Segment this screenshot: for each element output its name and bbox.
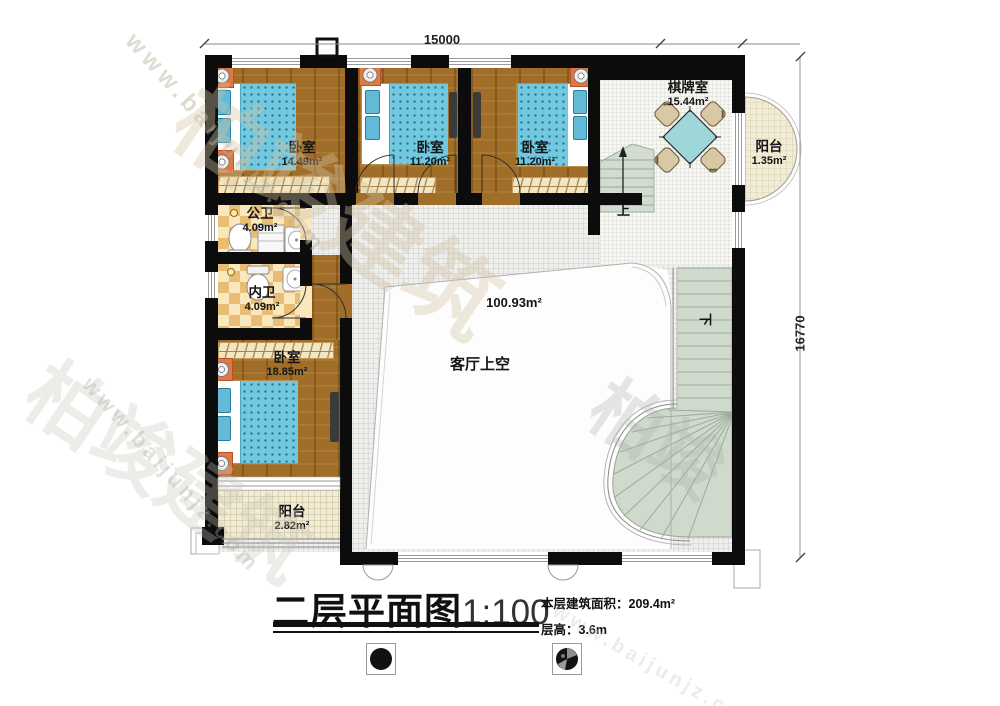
plan-notes: 本层建筑面积：209.4m² 层高：3.6m: [541, 593, 675, 638]
title-underline-thick: [273, 622, 539, 627]
floorplan-canvas: 卧室14.49m² 卧室11.20m² 卧室11.20m² 棋牌室15.44m²…: [0, 0, 1000, 706]
nightstand: [210, 452, 233, 475]
entry-arc-markers: [363, 565, 578, 580]
balcony-bottom-label: 阳台2.82m²: [252, 504, 332, 532]
nightstand: [210, 64, 234, 88]
bedroom2-label: 卧室11.20m²: [390, 140, 470, 168]
public-bath-label: 公卫4.09m²: [224, 206, 296, 234]
wardrobe: [360, 177, 436, 194]
bed-pillow: [216, 118, 231, 143]
bedroom1-label: 卧室14.49m²: [262, 140, 342, 168]
living-void-area-label: 100.93m²: [474, 296, 554, 311]
living-void-name-label: 客厅上空: [430, 356, 530, 373]
tv-panel: [449, 92, 457, 138]
exterior-step-right: [734, 550, 760, 588]
tv-panel: [473, 92, 481, 138]
bed-pillow: [573, 116, 587, 140]
bed-pillow: [216, 388, 231, 413]
compass-icon: [553, 644, 581, 674]
bedroom4-entry-floor: [312, 255, 340, 340]
bedroom4-label: 卧室18.85m²: [247, 350, 327, 378]
stair-up-label: 上: [617, 200, 630, 219]
bed-pillow: [365, 90, 380, 114]
exterior-step-left: [191, 528, 219, 554]
nightstand: [570, 65, 592, 87]
bed-pillow: [216, 416, 231, 441]
nightstand: [210, 358, 233, 381]
dot-icon: [370, 648, 392, 670]
bed-pillow: [573, 90, 587, 114]
wardrobe: [218, 176, 330, 194]
dimension-right: 16770: [793, 310, 808, 358]
inner-bath-label: 内卫4.09m²: [226, 285, 298, 313]
balcony-right-label: 阳台1.35m²: [740, 139, 798, 167]
roof-bump: [317, 39, 337, 56]
dimension-top: 15000: [412, 32, 472, 47]
nightstand: [359, 64, 381, 86]
bed-blanket: [240, 381, 298, 463]
bed-pillow: [216, 90, 231, 115]
exterior-step-left-inner: [196, 533, 219, 554]
bedroom3-label: 卧室11.20m²: [495, 140, 575, 168]
floor-area-note: 本层建筑面积：209.4m²: [541, 593, 675, 612]
bed-pillow: [365, 116, 380, 140]
floor-height-note: 层高：3.6m: [541, 619, 675, 638]
title-underline-thin: [273, 631, 539, 633]
stair-down-label: 下: [697, 313, 716, 326]
tv-panel: [330, 392, 339, 442]
legend-dot-symbol: [366, 643, 396, 675]
nightstand: [210, 150, 234, 174]
wardrobe: [512, 177, 592, 194]
legend-compass-symbol: [552, 643, 582, 675]
chess-room-label: 棋牌室15.44m²: [648, 80, 728, 108]
